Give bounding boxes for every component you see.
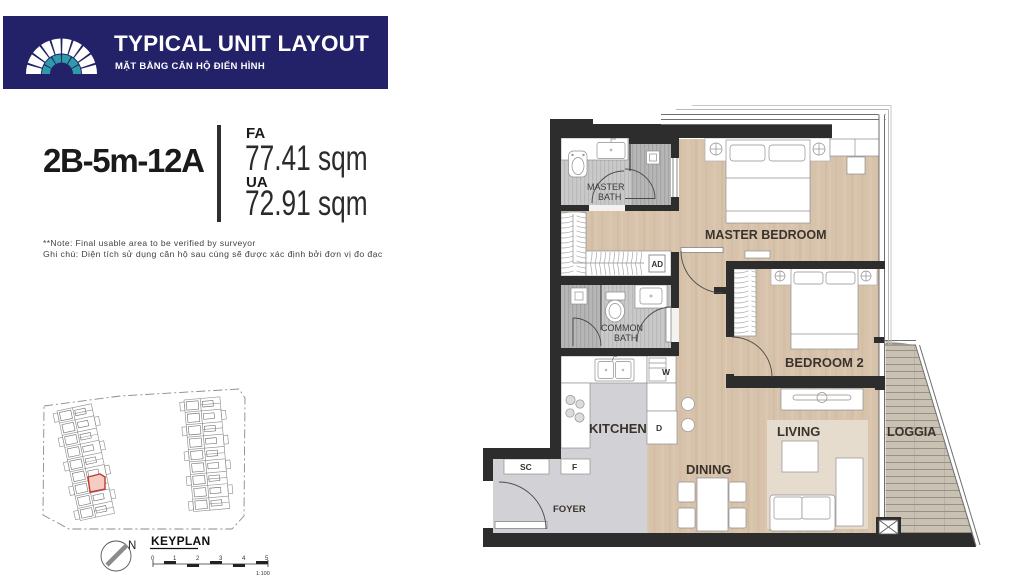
svg-text:D: D [656, 423, 662, 433]
svg-text:BATH: BATH [598, 192, 621, 202]
svg-text:BATH: BATH [614, 333, 637, 343]
svg-text:4: 4 [242, 556, 246, 562]
svg-text:FOYER: FOYER [553, 504, 586, 515]
svg-text:LOGGIA: LOGGIA [887, 425, 936, 439]
svg-text:COMMON: COMMON [601, 323, 643, 333]
svg-text:LIVING: LIVING [777, 424, 820, 439]
svg-text:DINING: DINING [686, 462, 732, 477]
svg-text:SC: SC [520, 462, 532, 472]
svg-text:KEYPLAN: KEYPLAN [151, 534, 210, 548]
svg-text:N: N [128, 540, 136, 552]
svg-text:F: F [572, 462, 577, 472]
svg-text:MASTER BEDROOM: MASTER BEDROOM [705, 228, 827, 242]
svg-text:BEDROOM 2: BEDROOM 2 [785, 355, 864, 370]
svg-text:KITCHEN: KITCHEN [589, 421, 647, 436]
svg-text:MASTER: MASTER [587, 182, 625, 192]
svg-text:W: W [662, 367, 671, 377]
svg-text:1:100: 1:100 [256, 571, 270, 577]
svg-text:AD: AD [652, 260, 664, 269]
svg-text:2: 2 [196, 556, 200, 562]
